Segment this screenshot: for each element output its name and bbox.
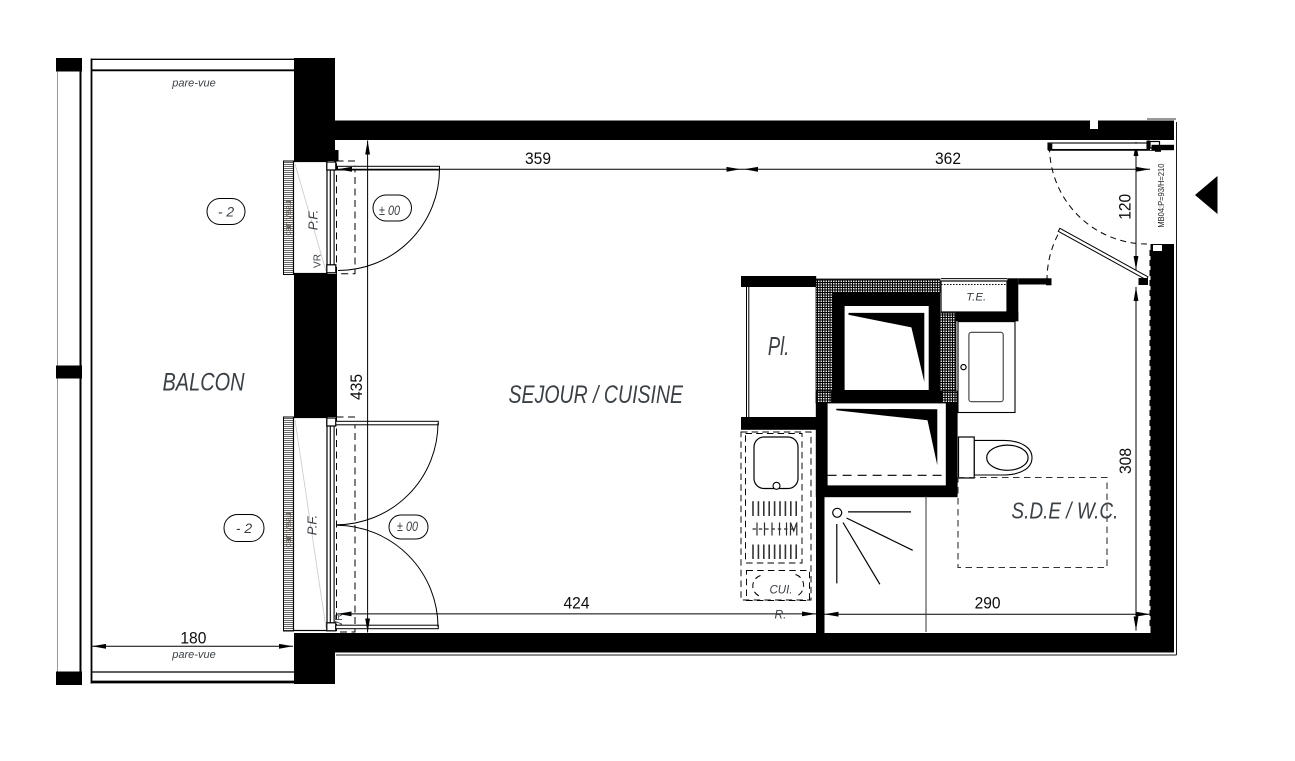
- svg-text:VR: VR: [313, 254, 324, 268]
- svg-text:S.D.E / W.C.: S.D.E / W.C.: [1011, 498, 1118, 524]
- svg-text:180: 180: [180, 628, 206, 647]
- svg-text:435: 435: [347, 374, 366, 400]
- svg-text:pare-vue: pare-vue: [171, 649, 215, 661]
- svg-text:T.E.: T.E.: [966, 292, 986, 304]
- svg-text:CUI.: CUI.: [770, 584, 793, 596]
- svg-text:P.F.: P.F.: [305, 515, 320, 535]
- svg-text:120: 120: [1116, 194, 1135, 220]
- svg-text:290: 290: [975, 594, 1001, 613]
- svg-text:P.F.: P.F.: [306, 210, 321, 230]
- svg-text:± 00: ± 00: [379, 203, 400, 218]
- svg-text:424: 424: [564, 594, 590, 613]
- svg-text:R.: R.: [775, 608, 787, 622]
- svg-text:362: 362: [935, 149, 961, 168]
- svg-text:± 00: ± 00: [397, 519, 418, 534]
- svg-text:BALCON: BALCON: [163, 369, 246, 397]
- svg-text:Pl.: Pl.: [768, 331, 790, 361]
- svg-text:359: 359: [525, 149, 551, 168]
- svg-text:308: 308: [1116, 448, 1135, 474]
- svg-text:MB04:P=93/H=210: MB04:P=93/H=210: [1156, 163, 1166, 227]
- svg-text:- 2: - 2: [236, 520, 253, 536]
- svg-text:caniveau: caniveau: [283, 512, 293, 547]
- svg-text:SEJOUR / CUISINE: SEJOUR / CUISINE: [509, 381, 684, 409]
- svg-text:caniveau: caniveau: [283, 200, 293, 235]
- svg-text:pare-vue: pare-vue: [171, 78, 215, 90]
- svg-text:- 2: - 2: [218, 204, 235, 220]
